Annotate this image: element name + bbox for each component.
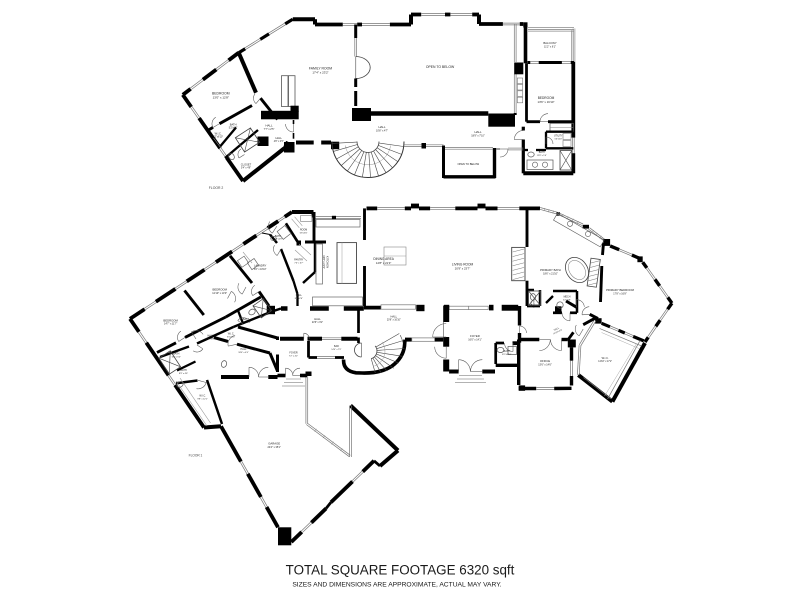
svg-text:BATH: BATH xyxy=(173,352,179,355)
svg-text:12'10" x 17'2": 12'10" x 17'2" xyxy=(598,361,612,363)
svg-text:CLOSET: CLOSET xyxy=(241,163,252,167)
svg-text:11'2" x 6'1": 11'2" x 6'1" xyxy=(544,45,556,48)
svg-text:10'8" x 4'7": 10'8" x 4'7" xyxy=(376,130,388,133)
svg-text:BATH: BATH xyxy=(180,369,186,372)
svg-text:BATH: BATH xyxy=(243,318,249,321)
svg-text:FOYER: FOYER xyxy=(470,334,480,338)
svg-text:12'8" x 21'3": 12'8" x 21'3" xyxy=(376,261,391,265)
svg-text:BATH: BATH xyxy=(539,151,545,154)
svg-text:12'10" x 13'0": 12'10" x 13'0" xyxy=(212,292,227,295)
svg-text:7'2" x 4'2": 7'2" x 4'2" xyxy=(289,356,298,358)
svg-text:13'8" x 21'3": 13'8" x 21'3" xyxy=(322,255,325,269)
svg-text:9'8" x 12'1": 9'8" x 12'1" xyxy=(197,399,208,401)
svg-text:14'0" x 7'9": 14'0" x 7'9" xyxy=(331,349,341,351)
svg-text:12'8" x 5'6": 12'8" x 5'6" xyxy=(537,155,547,157)
svg-text:18'9" x 7'10": 18'9" x 7'10" xyxy=(471,134,485,137)
svg-text:HALL: HALL xyxy=(475,130,482,134)
svg-text:9'10"x5'9": 9'10"x5'9" xyxy=(273,239,282,241)
svg-text:BATH: BATH xyxy=(504,350,510,353)
svg-text:18'0" x 4'5": 18'0" x 4'5" xyxy=(238,352,249,354)
svg-text:BATH: BATH xyxy=(275,235,281,238)
svg-text:BATH: BATH xyxy=(230,122,237,126)
svg-text:UTILITY: UTILITY xyxy=(554,136,563,138)
svg-text:5'2"x6'6": 5'2"x6'6" xyxy=(229,128,238,130)
svg-text:5'2"x8'2": 5'2"x8'2" xyxy=(534,300,536,308)
svg-text:HALL: HALL xyxy=(314,317,321,321)
svg-text:5'0"x4'3": 5'0"x4'3" xyxy=(227,337,235,339)
svg-text:FLOOR 1: FLOOR 1 xyxy=(189,454,203,458)
svg-text:7'7" x 2'5": 7'7" x 2'5" xyxy=(264,128,275,131)
svg-text:HALL: HALL xyxy=(296,294,303,297)
svg-text:OPEN TO BELOW: OPEN TO BELOW xyxy=(457,162,479,166)
svg-text:GARAGE: GARAGE xyxy=(268,442,280,446)
svg-text:PANTRY: PANTRY xyxy=(294,259,304,262)
svg-text:5'6"x6'0": 5'6"x6'0" xyxy=(554,139,562,141)
svg-text:KITCHEN: KITCHEN xyxy=(326,256,330,268)
svg-text:24'4" x 35'1": 24'4" x 35'1" xyxy=(267,446,281,449)
svg-text:SIZES AND DIMENSIONS ARE APPRO: SIZES AND DIMENSIONS ARE APPROXIMATE, AC… xyxy=(292,582,501,589)
svg-text:PRIMARY BATH: PRIMARY BATH xyxy=(540,268,561,272)
svg-text:18'6" x 21'10": 18'6" x 21'10" xyxy=(543,273,558,276)
svg-text:17'8" x 16'8": 17'8" x 16'8" xyxy=(613,292,627,295)
svg-text:HALL: HALL xyxy=(266,124,273,128)
svg-text:ROOM: ROOM xyxy=(300,230,307,232)
svg-text:8'3" x 5'3": 8'3" x 5'3" xyxy=(241,322,250,324)
svg-text:W.I.C.: W.I.C. xyxy=(602,356,609,360)
svg-text:W.I.C.: W.I.C. xyxy=(215,131,222,135)
svg-text:23'6" x 6'2": 23'6" x 6'2" xyxy=(312,322,323,324)
svg-text:BAR: BAR xyxy=(334,345,339,348)
svg-text:W.I.C.: W.I.C. xyxy=(199,395,206,398)
svg-text:HALL: HALL xyxy=(379,125,386,129)
svg-text:BEDROOM: BEDROOM xyxy=(212,288,227,292)
svg-text:13'0" x 12'8": 13'0" x 12'8" xyxy=(213,95,229,99)
svg-text:6'0" x 5'0": 6'0" x 5'0" xyxy=(172,356,181,358)
svg-text:16'0" x 14'1": 16'0" x 14'1" xyxy=(468,338,482,341)
svg-text:BATH: BATH xyxy=(530,301,533,307)
svg-text:8'6"x2'6": 8'6"x2'6" xyxy=(295,298,303,300)
svg-text:W.I.C.: W.I.C. xyxy=(228,333,235,336)
svg-text:7'6" x 6'7": 7'6" x 6'7" xyxy=(294,262,303,264)
svg-text:5'2"x6'10": 5'2"x6'10" xyxy=(213,137,223,139)
svg-text:6'6"x6'6": 6'6"x6'6" xyxy=(300,232,308,234)
svg-text:PRIMARY BEDROOM: PRIMARY BEDROOM xyxy=(606,288,635,292)
svg-text:20'9" x 23'7": 20'9" x 23'7" xyxy=(455,267,470,271)
svg-text:HALL: HALL xyxy=(275,136,282,140)
svg-text:6'6" x 10'10": 6'6" x 10'10" xyxy=(254,269,267,271)
svg-text:FLOOR 2: FLOOR 2 xyxy=(209,186,224,190)
svg-text:14'7" x 11'7": 14'7" x 11'7" xyxy=(164,323,177,326)
svg-text:BALCONY: BALCONY xyxy=(543,41,557,45)
svg-text:TOTAL SQUARE FOOTAGE 6320 sqft: TOTAL SQUARE FOOTAGE 6320 sqft xyxy=(286,563,515,578)
svg-text:13'6" x 16'10": 13'6" x 16'10" xyxy=(538,100,555,104)
svg-text:6'2"x6'8": 6'2"x6'8" xyxy=(563,300,571,302)
svg-text:13'6" x 14'6": 13'6" x 14'6" xyxy=(538,364,552,367)
svg-text:OPEN TO BELOW: OPEN TO BELOW xyxy=(426,65,455,69)
svg-text:HALL: HALL xyxy=(391,314,398,318)
svg-text:OFFICE: OFFICE xyxy=(540,359,550,363)
svg-text:BEDROOM: BEDROOM xyxy=(163,318,178,322)
svg-text:8'9" x 4'6": 8'9" x 4'6" xyxy=(179,373,188,375)
svg-text:HALL: HALL xyxy=(241,348,248,351)
svg-text:5'4" x 4'9": 5'4" x 4'9" xyxy=(241,168,251,170)
svg-text:LAUNDRY: LAUNDRY xyxy=(254,264,267,268)
svg-text:MECH: MECH xyxy=(564,297,571,299)
svg-text:4'0" x 4'5": 4'0" x 4'5" xyxy=(274,141,284,143)
svg-text:HALL: HALL xyxy=(208,335,215,338)
svg-text:FOYER: FOYER xyxy=(289,352,298,355)
svg-text:17'4" x 23'2": 17'4" x 23'2" xyxy=(312,71,328,75)
svg-text:20'6" x 16'10": 20'6" x 16'10" xyxy=(387,320,401,322)
svg-text:2'10"x8'9": 2'10"x8'9" xyxy=(206,339,215,341)
svg-text:8'2"x5'10": 8'2"x5'10" xyxy=(502,354,511,356)
